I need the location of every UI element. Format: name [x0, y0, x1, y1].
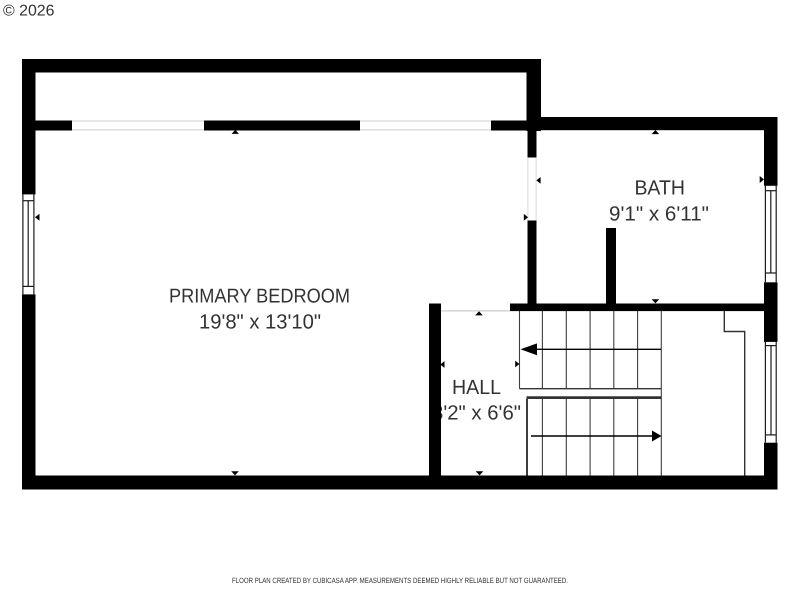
svg-text:9'1" x 6'11": 9'1" x 6'11"	[609, 202, 709, 225]
svg-text:© 2026: © 2026	[3, 3, 55, 20]
svg-text:FLOOR PLAN CREATED BY CUBICASA: FLOOR PLAN CREATED BY CUBICASA APP. MEAS…	[232, 576, 568, 585]
svg-text:3'2" x 6'6": 3'2" x 6'6"	[432, 402, 521, 425]
svg-text:BATH: BATH	[634, 176, 685, 199]
svg-text:PRIMARY BEDROOM: PRIMARY BEDROOM	[169, 286, 350, 308]
svg-text:19'8" x 13'10": 19'8" x 13'10"	[199, 311, 321, 334]
svg-text:HALL: HALL	[452, 376, 501, 399]
